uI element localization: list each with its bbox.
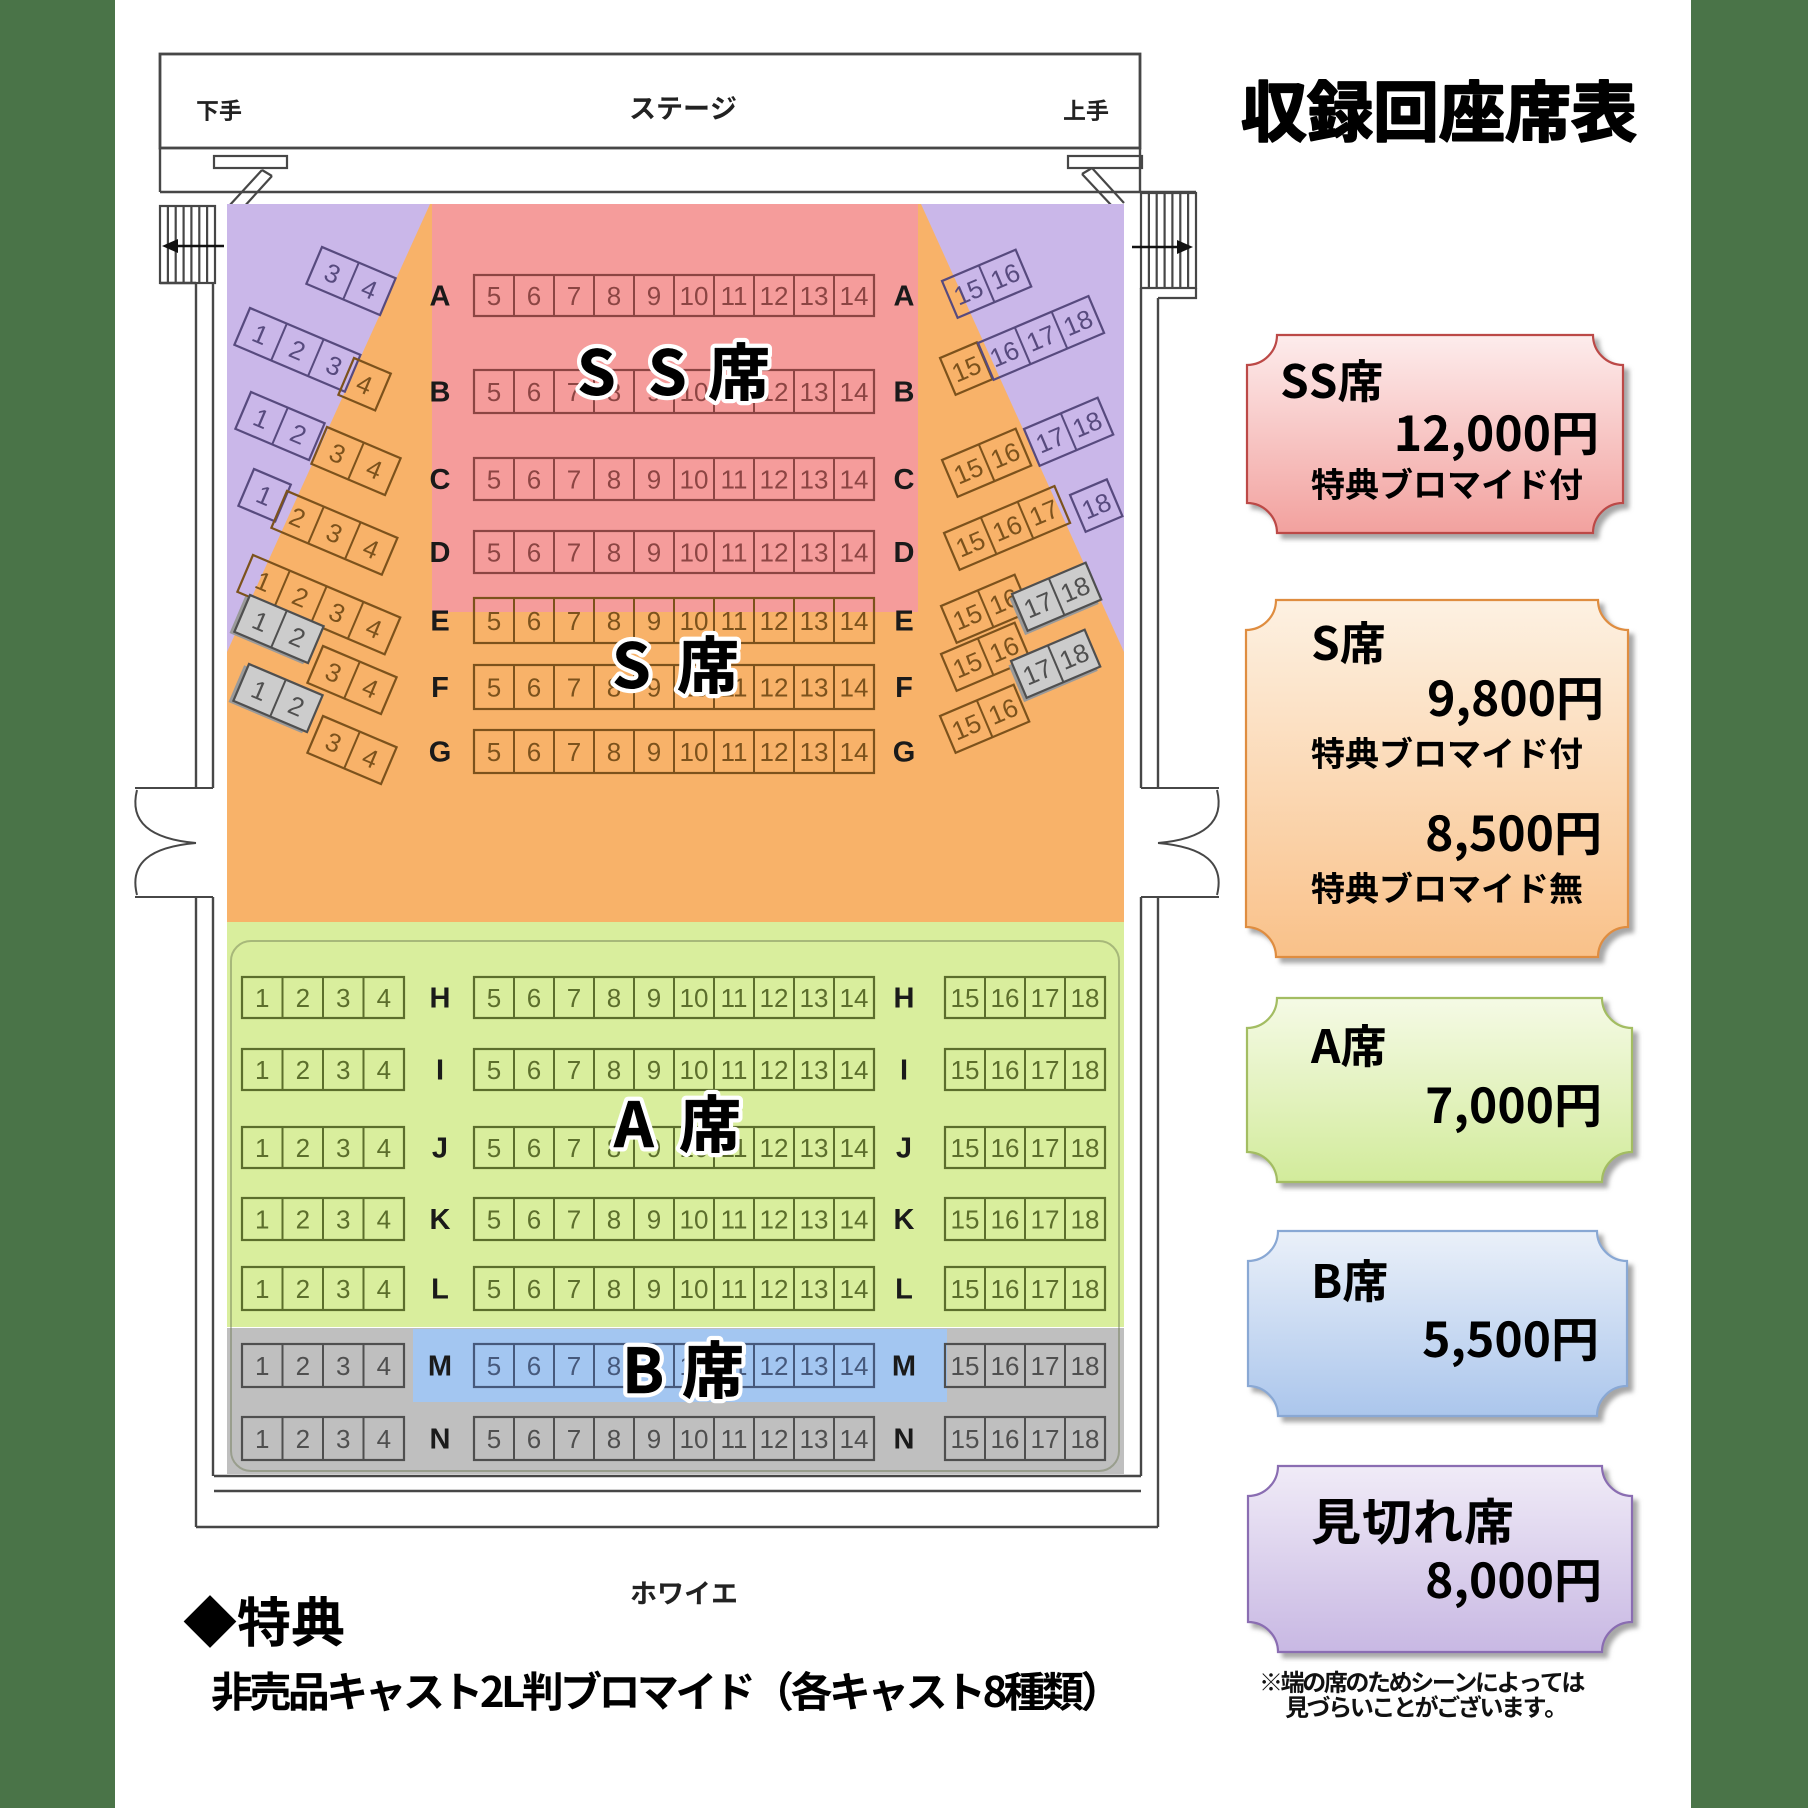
svg-text:6: 6	[527, 1424, 541, 1454]
svg-text:14: 14	[840, 1204, 869, 1234]
svg-text:11: 11	[721, 537, 748, 567]
svg-text:17: 17	[1031, 1424, 1060, 1454]
svg-text:17: 17	[1031, 1274, 1060, 1304]
svg-text:5: 5	[487, 1351, 501, 1381]
svg-text:14: 14	[840, 1274, 869, 1304]
svg-text:13: 13	[800, 1351, 829, 1381]
svg-text:J: J	[432, 1133, 448, 1165]
svg-text:4: 4	[377, 1133, 391, 1163]
svg-text:14: 14	[840, 737, 869, 767]
svg-text:7: 7	[567, 1055, 581, 1085]
svg-text:F: F	[895, 672, 913, 704]
svg-text:16: 16	[991, 1351, 1020, 1381]
svg-text:1: 1	[255, 1424, 269, 1454]
svg-text:17: 17	[1031, 1204, 1060, 1234]
svg-text:17: 17	[1031, 983, 1060, 1013]
svg-text:11: 11	[721, 1055, 748, 1085]
svg-text:16: 16	[991, 1055, 1020, 1085]
svg-text:5: 5	[487, 737, 501, 767]
svg-text:1: 1	[255, 1133, 269, 1163]
svg-text:13: 13	[800, 606, 829, 636]
svg-text:2: 2	[296, 1274, 310, 1304]
svg-text:K: K	[894, 1204, 915, 1236]
svg-text:17: 17	[1031, 1351, 1060, 1381]
svg-text:8: 8	[607, 1055, 621, 1085]
svg-text:14: 14	[840, 1351, 869, 1381]
svg-text:4: 4	[377, 1055, 391, 1085]
svg-text:11: 11	[721, 737, 748, 767]
svg-text:12: 12	[760, 281, 789, 311]
svg-text:15: 15	[951, 1133, 980, 1163]
svg-text:8: 8	[607, 1204, 621, 1234]
svg-text:K: K	[430, 1204, 451, 1236]
svg-text:9: 9	[647, 983, 661, 1013]
svg-text:5: 5	[487, 377, 501, 407]
svg-text:9: 9	[647, 464, 661, 494]
svg-text:9: 9	[647, 1055, 661, 1085]
svg-text:2: 2	[296, 1424, 310, 1454]
svg-text:1: 1	[255, 983, 269, 1013]
svg-text:9: 9	[647, 537, 661, 567]
svg-text:5: 5	[487, 983, 501, 1013]
svg-text:4: 4	[377, 983, 391, 1013]
svg-text:9: 9	[647, 1424, 661, 1454]
svg-text:5: 5	[487, 606, 501, 636]
svg-text:8: 8	[607, 1351, 621, 1381]
svg-text:13: 13	[800, 464, 829, 494]
svg-text:14: 14	[840, 983, 869, 1013]
svg-text:12: 12	[760, 983, 789, 1013]
svg-text:8: 8	[607, 464, 621, 494]
svg-text:16: 16	[991, 1204, 1020, 1234]
svg-text:11: 11	[721, 464, 748, 494]
svg-text:8: 8	[607, 983, 621, 1013]
svg-text:11: 11	[721, 983, 748, 1013]
svg-text:11: 11	[721, 1274, 748, 1304]
svg-text:18: 18	[1071, 1133, 1100, 1163]
svg-text:5: 5	[487, 281, 501, 311]
svg-text:L: L	[431, 1274, 449, 1306]
svg-text:E: E	[894, 606, 913, 638]
svg-text:A: A	[894, 281, 915, 313]
svg-text:8: 8	[607, 537, 621, 567]
svg-text:6: 6	[527, 1055, 541, 1085]
svg-text:12: 12	[760, 537, 789, 567]
svg-text:3: 3	[336, 1274, 350, 1304]
svg-text:N: N	[894, 1424, 915, 1456]
svg-text:G: G	[429, 737, 452, 769]
svg-text:E: E	[430, 606, 449, 638]
svg-text:2: 2	[296, 1055, 310, 1085]
svg-text:5: 5	[487, 1424, 501, 1454]
svg-text:6: 6	[527, 672, 541, 702]
svg-text:D: D	[894, 537, 915, 569]
svg-text:6: 6	[527, 537, 541, 567]
svg-text:18: 18	[1071, 1055, 1100, 1085]
svg-text:9: 9	[647, 1274, 661, 1304]
svg-text:7: 7	[567, 464, 581, 494]
svg-text:10: 10	[680, 1055, 709, 1085]
svg-text:7: 7	[567, 1351, 581, 1381]
svg-text:C: C	[894, 464, 915, 496]
svg-text:8: 8	[607, 1424, 621, 1454]
svg-text:2: 2	[296, 1133, 310, 1163]
svg-text:3: 3	[336, 1204, 350, 1234]
svg-text:8: 8	[607, 606, 621, 636]
svg-text:13: 13	[800, 1204, 829, 1234]
svg-text:13: 13	[800, 1274, 829, 1304]
svg-text:5: 5	[487, 537, 501, 567]
svg-text:L: L	[895, 1274, 913, 1306]
svg-text:4: 4	[377, 1274, 391, 1304]
svg-text:14: 14	[840, 1133, 869, 1163]
svg-text:3: 3	[336, 1351, 350, 1381]
svg-text:1: 1	[255, 1351, 269, 1381]
svg-text:5: 5	[487, 1055, 501, 1085]
svg-text:16: 16	[991, 1133, 1020, 1163]
svg-text:12: 12	[760, 672, 789, 702]
svg-text:7: 7	[567, 1274, 581, 1304]
svg-text:5: 5	[487, 1204, 501, 1234]
svg-text:14: 14	[840, 606, 869, 636]
svg-text:I: I	[436, 1055, 444, 1087]
svg-text:6: 6	[527, 1204, 541, 1234]
svg-text:13: 13	[800, 1424, 829, 1454]
svg-text:8: 8	[607, 281, 621, 311]
svg-text:17: 17	[1031, 1133, 1060, 1163]
svg-text:14: 14	[840, 464, 869, 494]
svg-text:12: 12	[760, 1204, 789, 1234]
svg-text:5: 5	[487, 1133, 501, 1163]
svg-text:7: 7	[567, 606, 581, 636]
svg-text:8: 8	[607, 737, 621, 767]
svg-text:12: 12	[760, 737, 789, 767]
svg-text:11: 11	[721, 281, 748, 311]
svg-text:14: 14	[840, 281, 869, 311]
svg-text:5: 5	[487, 464, 501, 494]
svg-text:N: N	[430, 1424, 451, 1456]
svg-text:3: 3	[336, 1133, 350, 1163]
svg-text:12: 12	[760, 1055, 789, 1085]
svg-text:M: M	[428, 1351, 452, 1383]
svg-text:11: 11	[721, 1204, 748, 1234]
svg-text:6: 6	[527, 281, 541, 311]
svg-text:5: 5	[487, 672, 501, 702]
svg-text:15: 15	[951, 1204, 980, 1234]
svg-text:13: 13	[800, 1133, 829, 1163]
svg-text:18: 18	[1071, 1274, 1100, 1304]
svg-text:3: 3	[336, 1424, 350, 1454]
svg-text:I: I	[900, 1055, 908, 1087]
svg-text:10: 10	[680, 464, 709, 494]
svg-text:6: 6	[527, 464, 541, 494]
svg-text:15: 15	[951, 1351, 980, 1381]
svg-text:12: 12	[760, 1351, 789, 1381]
svg-text:10: 10	[680, 1274, 709, 1304]
svg-text:8: 8	[607, 1274, 621, 1304]
svg-text:18: 18	[1071, 1204, 1100, 1234]
svg-text:3: 3	[336, 983, 350, 1013]
svg-text:12: 12	[760, 1133, 789, 1163]
svg-text:18: 18	[1071, 983, 1100, 1013]
svg-text:10: 10	[680, 983, 709, 1013]
svg-text:3: 3	[336, 1055, 350, 1085]
svg-text:10: 10	[680, 1424, 709, 1454]
svg-text:17: 17	[1031, 1055, 1060, 1085]
svg-text:2: 2	[296, 1351, 310, 1381]
svg-text:16: 16	[991, 1424, 1020, 1454]
svg-text:5: 5	[487, 1274, 501, 1304]
svg-text:4: 4	[377, 1351, 391, 1381]
svg-text:7: 7	[567, 983, 581, 1013]
svg-text:13: 13	[800, 983, 829, 1013]
svg-text:4: 4	[377, 1204, 391, 1234]
svg-text:7: 7	[567, 1424, 581, 1454]
svg-text:G: G	[893, 737, 916, 769]
svg-text:10: 10	[680, 1204, 709, 1234]
svg-text:16: 16	[991, 1274, 1020, 1304]
svg-text:H: H	[430, 983, 451, 1015]
svg-text:2: 2	[296, 983, 310, 1013]
svg-text:9: 9	[647, 737, 661, 767]
svg-text:9: 9	[647, 281, 661, 311]
svg-text:13: 13	[800, 281, 829, 311]
svg-text:7: 7	[567, 1204, 581, 1234]
svg-text:2: 2	[296, 1204, 310, 1234]
svg-text:6: 6	[527, 606, 541, 636]
svg-text:7: 7	[567, 737, 581, 767]
svg-text:12: 12	[760, 1274, 789, 1304]
svg-text:18: 18	[1071, 1351, 1100, 1381]
svg-text:15: 15	[951, 983, 980, 1013]
svg-text:14: 14	[840, 537, 869, 567]
svg-text:7: 7	[567, 1133, 581, 1163]
svg-text:7: 7	[567, 281, 581, 311]
svg-text:14: 14	[840, 377, 869, 407]
svg-text:J: J	[896, 1133, 912, 1165]
svg-text:10: 10	[680, 737, 709, 767]
svg-text:F: F	[431, 672, 449, 704]
svg-text:7: 7	[567, 672, 581, 702]
svg-text:13: 13	[800, 537, 829, 567]
svg-text:6: 6	[527, 1351, 541, 1381]
svg-text:B: B	[894, 377, 915, 409]
svg-text:6: 6	[527, 377, 541, 407]
svg-text:16: 16	[991, 983, 1020, 1013]
svg-text:10: 10	[680, 537, 709, 567]
svg-text:1: 1	[255, 1055, 269, 1085]
svg-text:4: 4	[377, 1424, 391, 1454]
svg-text:A: A	[430, 281, 451, 313]
svg-text:12: 12	[760, 606, 789, 636]
svg-text:10: 10	[680, 281, 709, 311]
svg-text:18: 18	[1071, 1424, 1100, 1454]
svg-text:6: 6	[527, 737, 541, 767]
svg-text:6: 6	[527, 983, 541, 1013]
svg-text:11: 11	[721, 606, 748, 636]
svg-text:D: D	[430, 537, 451, 569]
svg-text:B: B	[430, 377, 451, 409]
svg-text:M: M	[892, 1351, 916, 1383]
svg-text:12: 12	[760, 464, 789, 494]
svg-text:13: 13	[800, 377, 829, 407]
svg-text:H: H	[894, 983, 915, 1015]
svg-text:15: 15	[951, 1424, 980, 1454]
svg-text:14: 14	[840, 672, 869, 702]
svg-text:14: 14	[840, 1424, 869, 1454]
svg-text:11: 11	[721, 1424, 748, 1454]
svg-text:6: 6	[527, 1133, 541, 1163]
svg-text:7: 7	[567, 537, 581, 567]
svg-text:13: 13	[800, 737, 829, 767]
svg-text:15: 15	[951, 1274, 980, 1304]
svg-text:13: 13	[800, 1055, 829, 1085]
svg-text:C: C	[430, 464, 451, 496]
svg-text:1: 1	[255, 1274, 269, 1304]
svg-text:12: 12	[760, 1424, 789, 1454]
svg-text:9: 9	[647, 606, 661, 636]
svg-text:9: 9	[647, 1204, 661, 1234]
svg-text:6: 6	[527, 1274, 541, 1304]
svg-text:14: 14	[840, 1055, 869, 1085]
svg-text:1: 1	[255, 1204, 269, 1234]
svg-text:15: 15	[951, 1055, 980, 1085]
svg-text:13: 13	[800, 672, 829, 702]
